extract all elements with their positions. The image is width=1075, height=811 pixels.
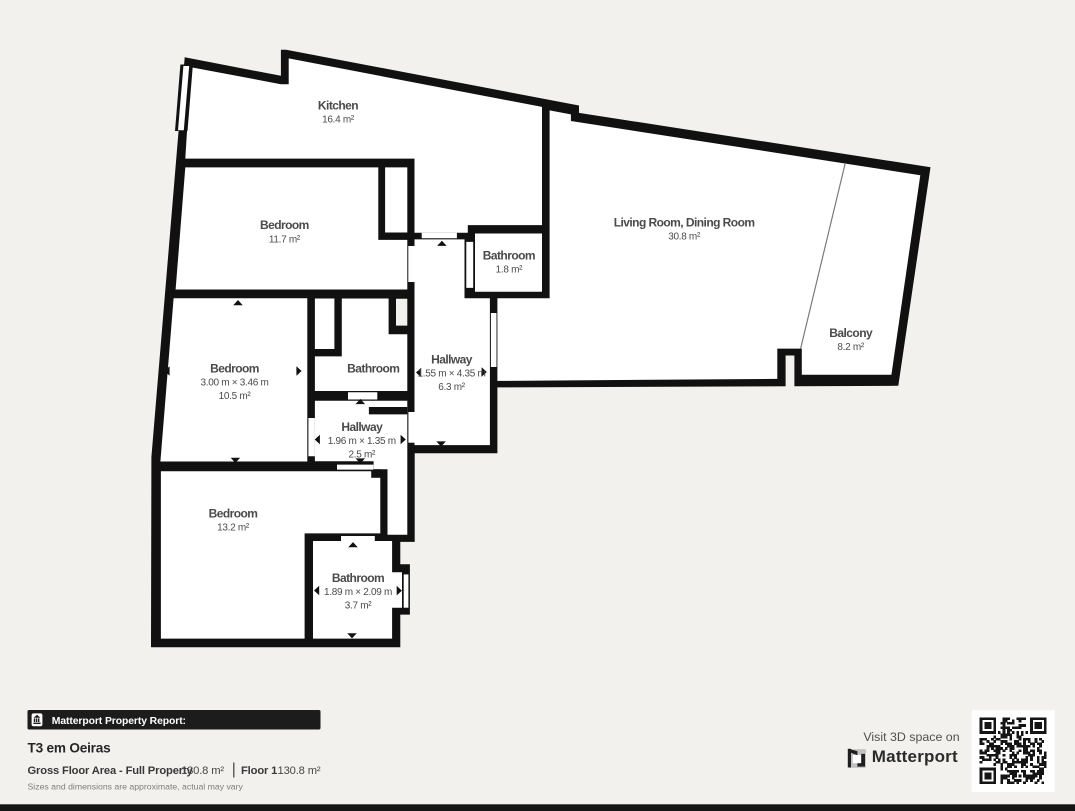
svg-text:13.2 m²: 13.2 m² [217,523,250,534]
svg-text:30.8 m²: 30.8 m² [668,232,701,243]
svg-text:2.5 m²: 2.5 m² [349,449,377,460]
svg-text:130.8 m²: 130.8 m² [278,765,321,777]
svg-text:10.5 m²: 10.5 m² [219,391,252,402]
svg-text:16.4 m²: 16.4 m² [322,115,355,126]
svg-text:Bedroom: Bedroom [209,507,258,521]
svg-text:Visit 3D space on: Visit 3D space on [863,730,959,744]
svg-text:Bathroom: Bathroom [332,571,384,585]
svg-text:Balcony: Balcony [829,326,873,340]
svg-text:Bedroom: Bedroom [210,361,259,375]
svg-text:Kitchen: Kitchen [318,99,358,113]
svg-text:1.89 m × 2.09 m: 1.89 m × 2.09 m [324,587,392,598]
svg-text:Bedroom: Bedroom [260,218,309,232]
svg-text:Floor 1: Floor 1 [241,765,277,777]
svg-text:Bathroom: Bathroom [483,249,535,263]
svg-text:11.7 m²: 11.7 m² [269,234,301,245]
svg-text:Matterport: Matterport [872,747,958,766]
svg-text:3.00 m × 3.46 m: 3.00 m × 3.46 m [200,378,268,389]
svg-text:130.8 m²: 130.8 m² [181,765,224,777]
svg-text:Gross Floor Area - Full Proper: Gross Floor Area - Full Property [28,765,194,777]
svg-text:Hallway: Hallway [431,353,473,367]
svg-text:Bathroom: Bathroom [347,362,399,376]
svg-text:1.55 m × 4.35 m: 1.55 m × 4.35 m [417,369,485,380]
svg-text:Hallway: Hallway [341,420,383,434]
svg-text:T3 em Oeiras: T3 em Oeiras [28,741,111,756]
svg-text:1.96 m × 1.35 m: 1.96 m × 1.35 m [328,436,396,447]
svg-text:8.2 m²: 8.2 m² [837,342,865,353]
svg-text:1.8 m²: 1.8 m² [496,265,524,276]
svg-text:6.3 m²: 6.3 m² [438,382,466,393]
svg-text:Sizes and dimensions are appro: Sizes and dimensions are approximate, ac… [28,782,244,792]
svg-text:3.7 m²: 3.7 m² [345,600,373,611]
svg-text:Matterport Property Report:: Matterport Property Report: [52,716,186,727]
svg-text:Living Room, Dining Room: Living Room, Dining Room [614,216,755,230]
